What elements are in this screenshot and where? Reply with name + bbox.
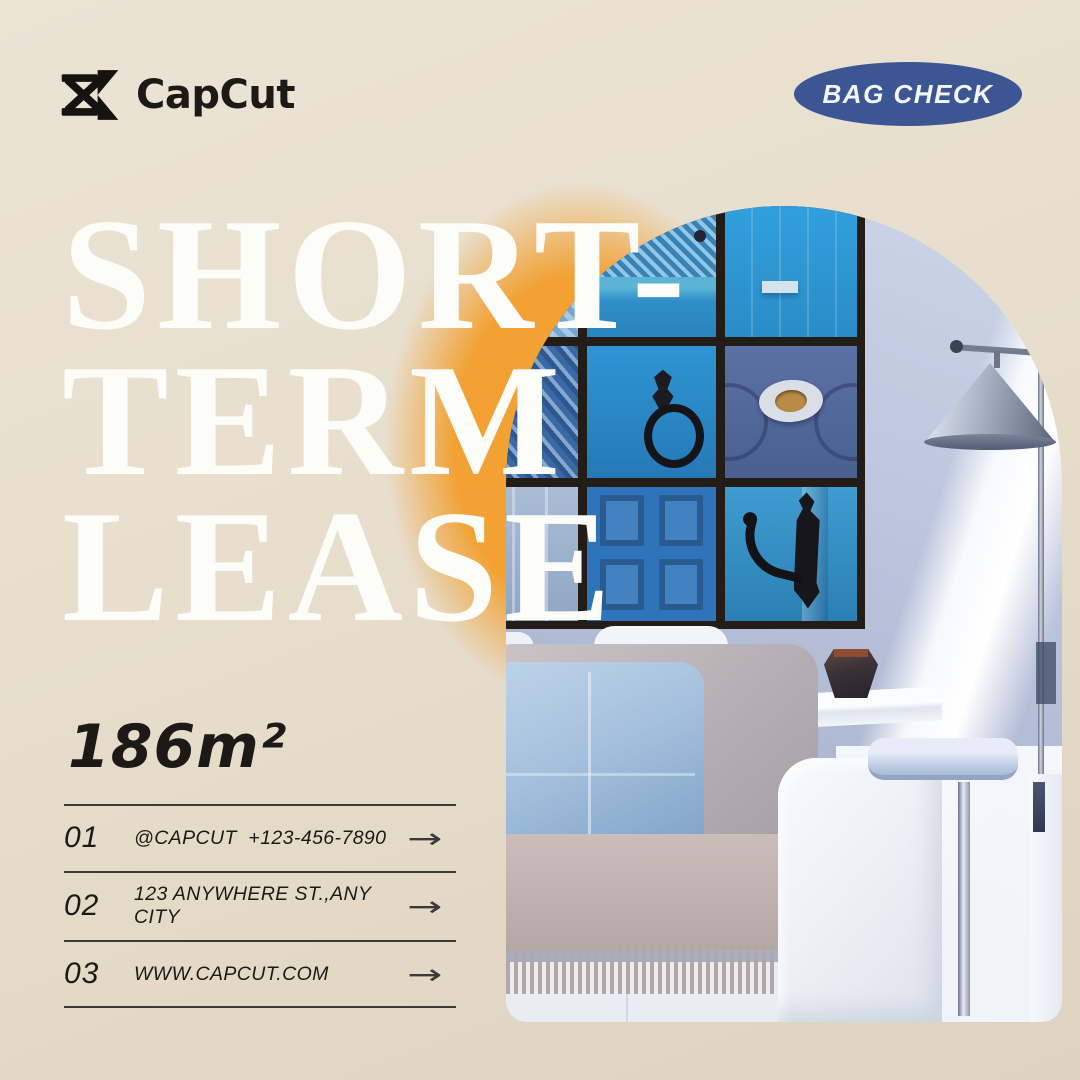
- row-label: 123 ANYWHERE ST.,ANY CITY: [134, 883, 419, 929]
- capcut-logo-icon: [58, 66, 122, 124]
- sofa-throw-blanket: [506, 834, 812, 950]
- window-frame: [1036, 642, 1056, 704]
- sofa-arm: [778, 758, 942, 1022]
- brand-name: CapCut: [136, 72, 295, 118]
- bag-check-badge: BAG CHECK: [794, 62, 1022, 126]
- door-tile-flat-blue: [725, 206, 857, 337]
- poster-canvas: SHORT- TERM LEASE CapCut BAG CHECK 186m²…: [0, 0, 1080, 1080]
- divider: [64, 871, 456, 873]
- title-line-2: TERM: [62, 340, 566, 500]
- door-tile-escutcheon: [725, 346, 857, 478]
- row-number: 03: [64, 957, 134, 991]
- door-panel: [659, 559, 703, 610]
- floor-lamp-shade: [924, 363, 1056, 443]
- title-line-1: SHORT-: [62, 194, 691, 354]
- throw-fringe: [506, 942, 812, 994]
- door-tile-lever: [725, 487, 857, 621]
- badge-label: BAG CHECK: [823, 79, 994, 110]
- arrow-right-icon: →: [407, 822, 442, 855]
- c-table-chrome-leg: [958, 782, 970, 1016]
- title-line-3: LEASE: [62, 486, 617, 646]
- row-number: 02: [64, 889, 134, 923]
- table-leg-white: [1030, 774, 1062, 1022]
- door-tile-knocker: [587, 346, 716, 478]
- contact-row-1: 01 @CAPCUT +123-456-7890 →: [64, 806, 456, 870]
- floor-lamp-counterweight: [950, 340, 963, 353]
- contact-row-2: 02 123 ANYWHERE ST.,ANY CITY →: [64, 874, 456, 938]
- row-label: @CAPCUT +123-456-7890: [134, 827, 419, 850]
- door-knocker-ring-icon: [644, 404, 704, 468]
- door-handle-plate-icon: [762, 281, 798, 293]
- area-label: 186m²: [68, 712, 287, 782]
- arrow-right-icon: →: [407, 890, 442, 923]
- contact-row-3: 03 WWW.CAPCUT.COM →: [64, 942, 456, 1006]
- brand-logo: CapCut: [58, 66, 295, 124]
- door-panel: [659, 495, 703, 546]
- door-knob-icon: [694, 230, 706, 242]
- c-table-top: [868, 738, 1018, 780]
- divider: [64, 1006, 456, 1008]
- row-label: WWW.CAPCUT.COM: [134, 963, 419, 986]
- arrow-right-icon: →: [407, 958, 442, 991]
- row-number: 01: [64, 821, 134, 855]
